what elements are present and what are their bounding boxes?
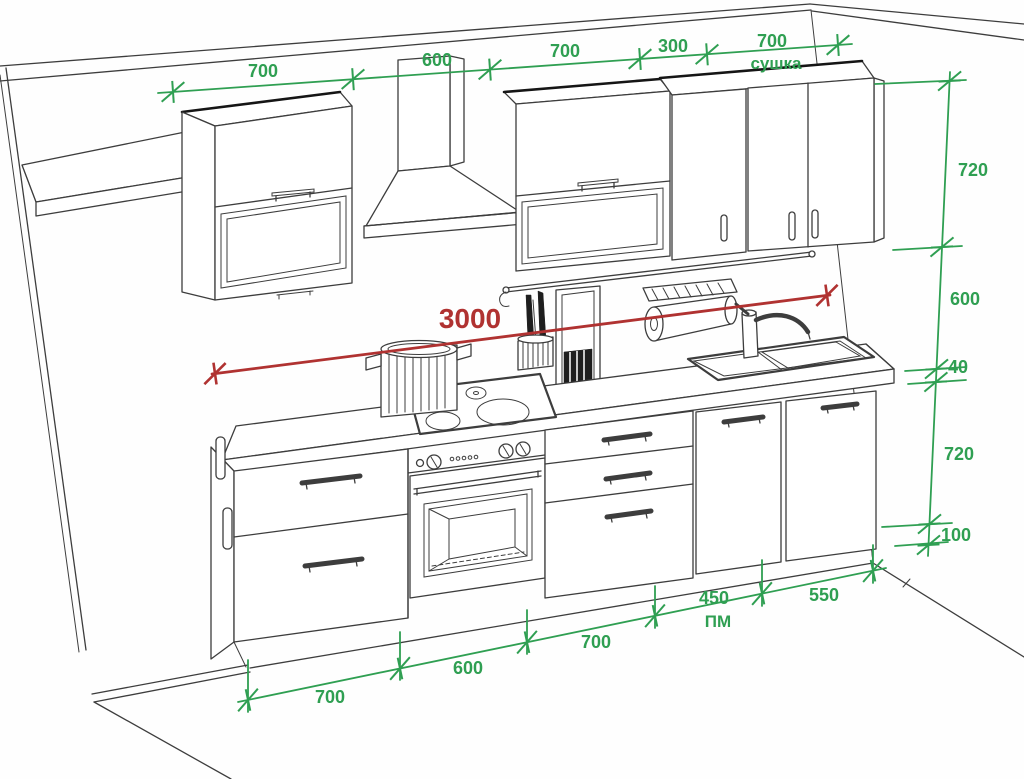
dim-top-2: 600 <box>422 50 452 70</box>
dim-bottom-4: 450 <box>699 588 729 608</box>
right-dimension-line: 720 600 40 720 100 <box>875 71 988 556</box>
dim-bottom-note: ПМ <box>705 612 731 631</box>
dim-bottom-5: 550 <box>809 585 839 605</box>
dim-right-1: 720 <box>958 160 988 180</box>
dim-total-label: 3000 <box>439 303 501 334</box>
door-handle-vertical <box>223 508 232 549</box>
door-handle-vertical <box>789 212 795 240</box>
dim-top-5: 700 <box>757 31 787 51</box>
oven <box>408 442 545 618</box>
dim-bottom-2: 600 <box>453 658 483 678</box>
base-cabinet-left-end <box>211 437 234 659</box>
sink-cabinet <box>786 391 876 561</box>
cooker-hood <box>364 56 524 238</box>
drawer-cabinet-left <box>234 449 408 642</box>
dim-top-1: 700 <box>248 61 278 81</box>
dim-right-2: 600 <box>950 289 980 309</box>
dim-bottom-1: 700 <box>315 687 345 707</box>
dim-top-4: 300 <box>658 36 688 56</box>
kitchen-drawing-canvas: 3000 700 600 700 300 700 сушка 720 600 4… <box>0 0 1024 779</box>
kitchen-drawing: 3000 700 600 700 300 700 сушка 720 600 4… <box>0 0 1024 779</box>
dim-right-4: 720 <box>944 444 974 464</box>
door-handle-vertical <box>216 437 225 479</box>
dishwasher-cabinet <box>696 402 781 574</box>
door-handle-vertical <box>812 210 818 238</box>
dim-right-3: 40 <box>948 357 968 377</box>
dim-top-3: 700 <box>550 41 580 61</box>
dim-right-5: 100 <box>941 525 971 545</box>
wall-cabinet-4-drying <box>748 78 884 251</box>
dim-top-note: сушка <box>750 54 802 73</box>
dim-bottom-3: 700 <box>581 632 611 652</box>
oven-knob <box>417 460 424 467</box>
door-handle-vertical <box>721 215 727 241</box>
wall-cabinet-2 <box>504 79 670 271</box>
wall-cabinet-1 <box>182 92 352 300</box>
drawer-cabinet-right <box>545 411 693 598</box>
